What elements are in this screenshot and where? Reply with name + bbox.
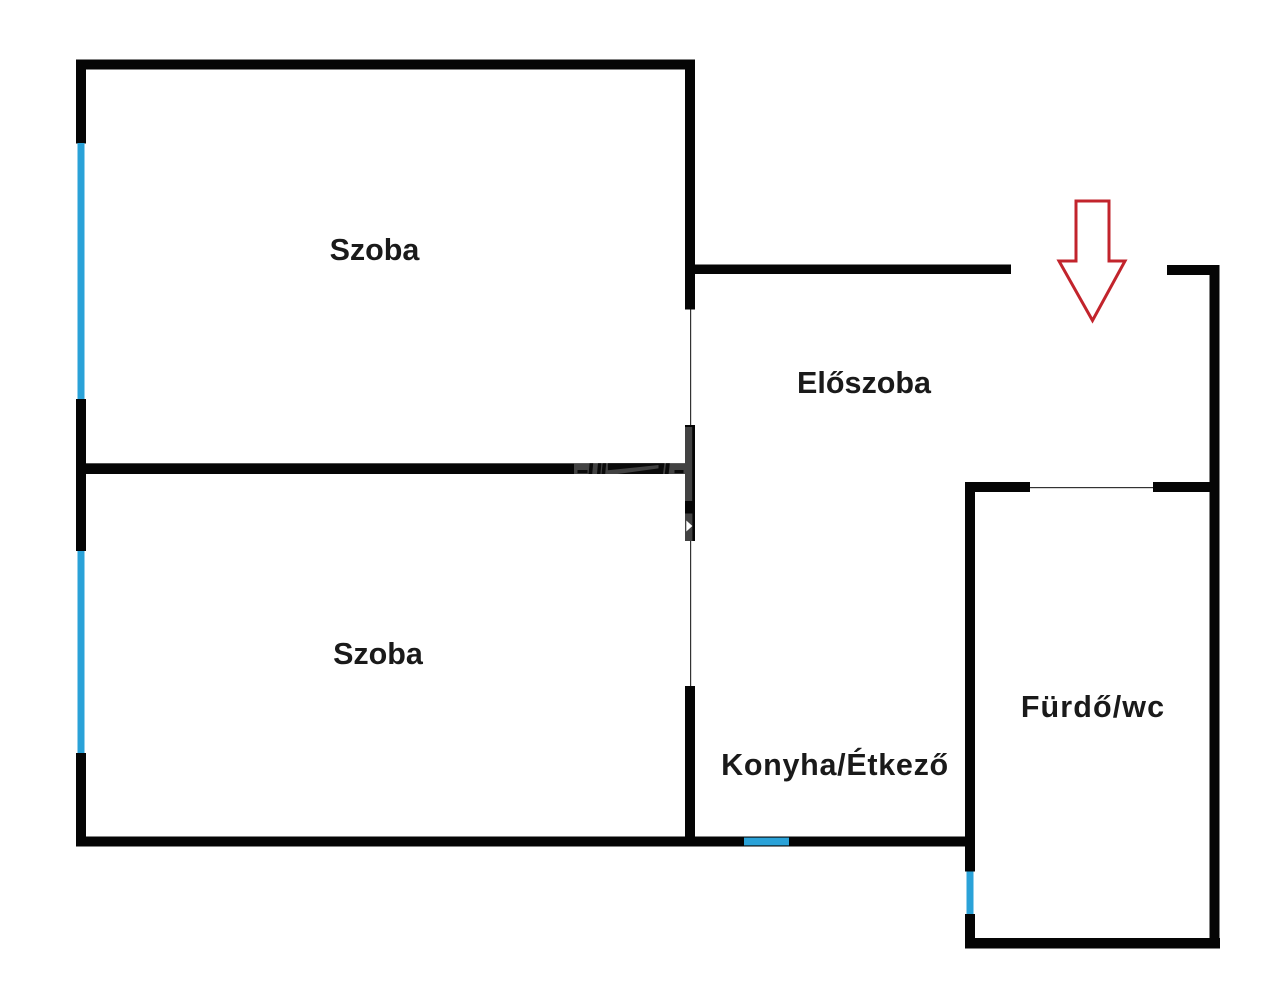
svg-text:Szoba: Szoba: [333, 637, 424, 671]
svg-text:Szoba: Szoba: [330, 233, 421, 267]
svg-text:Fürdő/wc: Fürdő/wc: [1021, 690, 1165, 724]
svg-text:Előszoba: Előszoba: [797, 366, 932, 400]
svg-text:Konyha/Étkező: Konyha/Étkező: [721, 747, 949, 782]
